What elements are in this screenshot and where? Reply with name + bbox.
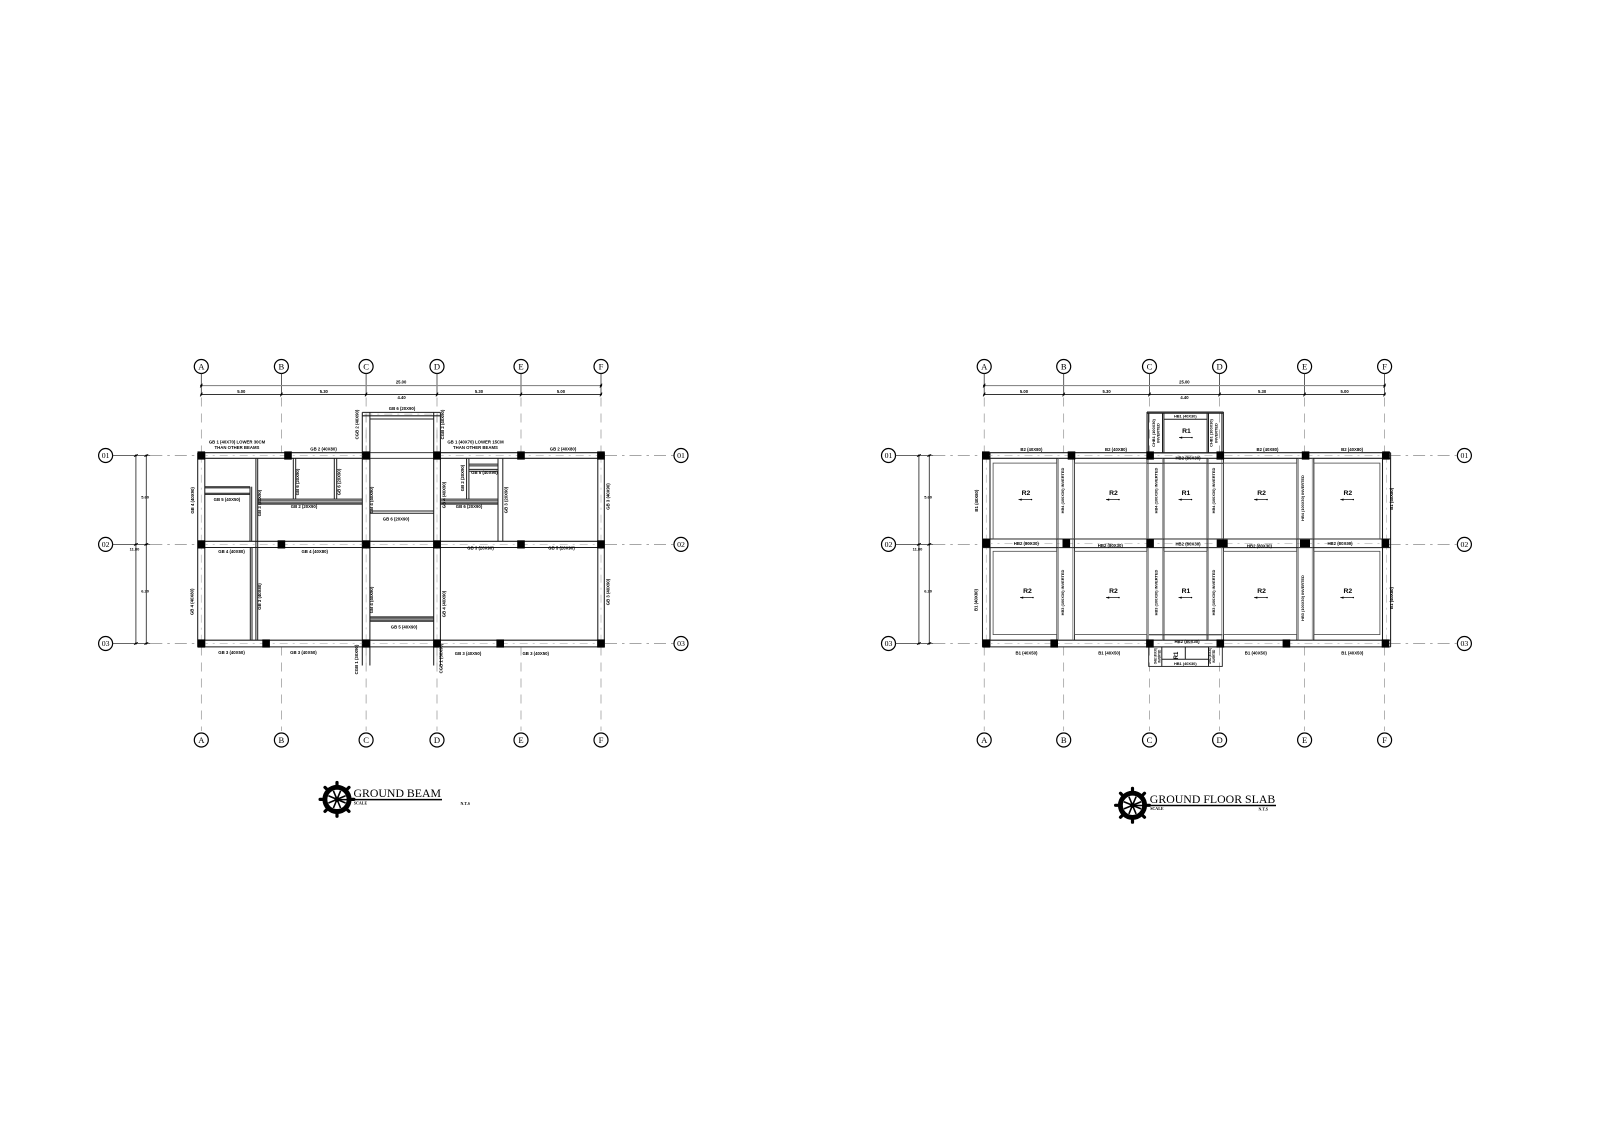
svg-text:B: B: [1061, 361, 1067, 371]
svg-text:03: 03: [102, 639, 110, 648]
svg-text:B1 (40X50): B1 (40X50): [1341, 651, 1364, 656]
svg-text:R2: R2: [1257, 490, 1266, 497]
svg-text:INVERTED: INVERTED: [1212, 649, 1216, 662]
svg-text:11.80: 11.80: [913, 547, 924, 552]
svg-text:GB 2 (40X80): GB 2 (40X80): [310, 447, 337, 452]
svg-text:A: A: [981, 361, 988, 371]
svg-text:HB2 (80X30): HB2 (80X30): [1247, 544, 1273, 549]
svg-text:INVERTED: INVERTED: [1157, 649, 1161, 662]
svg-text:F: F: [1382, 361, 1387, 371]
svg-text:5.00: 5.00: [237, 389, 246, 394]
svg-text:5.00: 5.00: [1020, 389, 1029, 394]
svg-text:GB 1 (40X70) LOWER 15CM: GB 1 (40X70) LOWER 15CM: [447, 439, 504, 444]
svg-text:GB 5 (40X90): GB 5 (40X90): [391, 625, 418, 630]
svg-text:HB2 (80X30): HB2 (80X30): [1175, 541, 1201, 546]
svg-text:B1 (40X80): B1 (40X80): [974, 588, 979, 611]
svg-text:GB 3 (40X50): GB 3 (40X50): [290, 650, 317, 655]
svg-text:A: A: [198, 361, 205, 371]
svg-text:INVERTED: INVERTED: [1213, 423, 1218, 443]
svg-text:5.00: 5.00: [557, 389, 566, 394]
svg-text:R2: R2: [1343, 588, 1352, 595]
svg-text:25.00: 25.00: [1179, 379, 1190, 384]
svg-text:01: 01: [102, 451, 110, 460]
svg-text:5.30: 5.30: [1103, 389, 1112, 394]
svg-text:R2: R2: [1022, 490, 1031, 497]
svg-text:GB 3 (40X50): GB 3 (40X50): [522, 651, 549, 656]
svg-text:GB 6 (20X90): GB 6 (20X90): [337, 468, 342, 495]
svg-text:25.00: 25.00: [396, 379, 407, 384]
svg-text:GB 4 (40X90): GB 4 (40X90): [190, 487, 195, 514]
svg-text:INVERTED: INVERTED: [1156, 423, 1161, 443]
svg-text:GB 4 (40X90): GB 4 (40X90): [442, 481, 447, 508]
svg-text:HB2 (80X30): HB2 (80X30): [1098, 543, 1124, 548]
svg-text:HB3 (100X30) INVERTED: HB3 (100X30) INVERTED: [1154, 570, 1159, 616]
svg-text:R1: R1: [1182, 490, 1191, 497]
svg-text:5.60: 5.60: [924, 494, 933, 499]
svg-text:C: C: [363, 735, 369, 745]
svg-text:E: E: [518, 735, 523, 745]
svg-text:B: B: [279, 735, 285, 745]
svg-text:HB2 (80X30): HB2 (80X30): [1175, 455, 1201, 460]
svg-text:CGB 2 (40X90): CGB 2 (40X90): [354, 409, 359, 439]
svg-text:GB 3 (40X50): GB 3 (40X50): [455, 651, 482, 656]
svg-text:01: 01: [677, 451, 685, 460]
svg-text:HB2 (80X30): HB2 (80X30): [1174, 639, 1200, 644]
svg-text:B1 (40X80): B1 (40X80): [1389, 586, 1394, 609]
svg-text:R2: R2: [1257, 588, 1266, 595]
svg-text:02: 02: [677, 540, 685, 549]
svg-text:SCALE: SCALE: [1150, 806, 1164, 811]
svg-text:C: C: [363, 361, 369, 371]
svg-text:D: D: [1216, 361, 1222, 371]
svg-text:B2 (40X80): B2 (40X80): [1020, 447, 1043, 452]
svg-text:A: A: [981, 735, 988, 745]
svg-text:B1 (40X80): B1 (40X80): [974, 489, 979, 512]
svg-text:B: B: [279, 361, 285, 371]
svg-text:4.40: 4.40: [1180, 395, 1189, 400]
svg-text:GB 2 (20X90): GB 2 (20X90): [460, 464, 465, 491]
svg-text:THAN OTHER BEAMS: THAN OTHER BEAMS: [453, 445, 498, 450]
svg-text:HB4 (100X30) INVERTED: HB4 (100X30) INVERTED: [1211, 468, 1216, 514]
svg-text:GB 3 (40X90): GB 3 (40X90): [605, 578, 610, 605]
svg-text:GROUND BEAM: GROUND BEAM: [354, 787, 442, 800]
svg-text:R2: R2: [1109, 588, 1118, 595]
svg-text:GB 2 (40X80): GB 2 (40X80): [550, 447, 577, 452]
svg-text:HB3 (100X30) INVERTED: HB3 (100X30) INVERTED: [1060, 570, 1065, 616]
svg-text:GB 5 (40X90): GB 5 (40X90): [471, 470, 498, 475]
svg-text:GB 3 (20X90): GB 3 (20X90): [257, 489, 262, 516]
svg-text:HB2 (80X30): HB2 (80X30): [1014, 541, 1040, 546]
svg-text:D: D: [1216, 735, 1222, 745]
svg-text:THAN OTHER BEAMS: THAN OTHER BEAMS: [215, 445, 260, 450]
svg-text:GB 3 (40X80): GB 3 (40X80): [257, 583, 262, 610]
svg-text:GB 4 (40X90): GB 4 (40X90): [369, 486, 374, 513]
svg-text:B2 (40X80): B2 (40X80): [1341, 447, 1364, 452]
svg-text:GB 5 (40X50): GB 5 (40X50): [214, 497, 241, 502]
svg-text:02: 02: [1461, 540, 1469, 549]
svg-text:GB 3 (20X90): GB 3 (20X90): [504, 486, 509, 513]
svg-text:R1: R1: [1174, 651, 1180, 659]
svg-text:4.40: 4.40: [398, 395, 407, 400]
svg-text:5.30: 5.30: [320, 389, 329, 394]
svg-text:11.80: 11.80: [130, 547, 141, 552]
svg-text:CGB 2 (40X90): CGB 2 (40X90): [440, 409, 445, 439]
svg-text:R2: R2: [1023, 588, 1032, 595]
svg-text:N.T.S: N.T.S: [1259, 807, 1269, 812]
svg-text:R1: R1: [1182, 428, 1191, 435]
svg-text:HB1 (40X30): HB1 (40X30): [1174, 414, 1197, 419]
svg-text:F: F: [1382, 735, 1387, 745]
svg-text:GB 3 (40X90): GB 3 (40X90): [605, 483, 610, 510]
svg-text:GB 5 (20X90): GB 5 (20X90): [548, 545, 575, 550]
svg-text:C: C: [1147, 735, 1153, 745]
svg-text:B1 (40X50): B1 (40X50): [1245, 651, 1268, 656]
svg-text:F: F: [599, 735, 604, 745]
svg-text:03: 03: [1461, 639, 1469, 648]
svg-text:03: 03: [677, 639, 685, 648]
svg-text:HB4 (100X30) INVERTED: HB4 (100X30) INVERTED: [1060, 468, 1065, 514]
svg-text:C: C: [1147, 361, 1153, 371]
svg-text:R1: R1: [1182, 588, 1191, 595]
svg-text:E: E: [1302, 361, 1307, 371]
svg-text:02: 02: [885, 540, 893, 549]
svg-text:A: A: [198, 735, 205, 745]
svg-text:R2: R2: [1109, 490, 1118, 497]
svg-text:HB3 (100X30) INVERTED: HB3 (100X30) INVERTED: [1211, 570, 1216, 616]
svg-text:GB 4 (40X80): GB 4 (40X80): [189, 588, 194, 615]
svg-text:B: B: [1061, 735, 1067, 745]
svg-text:B1 (40X50): B1 (40X50): [1098, 651, 1121, 656]
svg-text:F: F: [599, 361, 604, 371]
svg-text:5.00: 5.00: [1341, 389, 1350, 394]
svg-text:D: D: [434, 735, 440, 745]
svg-text:5.30: 5.30: [475, 389, 484, 394]
svg-text:HB3 (100X30) INVERTED: HB3 (100X30) INVERTED: [1300, 575, 1305, 621]
svg-text:B2 (40X80): B2 (40X80): [1257, 447, 1280, 452]
svg-text:03: 03: [885, 639, 893, 648]
svg-text:GB 4 (40X90): GB 4 (40X90): [442, 590, 447, 617]
svg-text:5.60: 5.60: [141, 494, 150, 499]
svg-text:D: D: [434, 361, 440, 371]
svg-text:GB 6 (20X90): GB 6 (20X90): [383, 516, 410, 521]
svg-text:CGB 1 (30X90): CGB 1 (30X90): [438, 643, 443, 673]
svg-text:GB 3 (40X50): GB 3 (40X50): [218, 650, 245, 655]
svg-text:GB 6 (20X90): GB 6 (20X90): [456, 504, 483, 509]
svg-text:02: 02: [102, 540, 110, 549]
svg-text:5.30: 5.30: [1258, 389, 1267, 394]
svg-text:B2 (40X80): B2 (40X80): [1105, 447, 1128, 452]
svg-text:R2: R2: [1343, 490, 1352, 497]
svg-text:HB1 (40X30): HB1 (40X30): [1174, 661, 1197, 666]
svg-text:E: E: [518, 361, 523, 371]
svg-text:HB4 (100X30) INVERTED: HB4 (100X30) INVERTED: [1300, 475, 1305, 521]
svg-text:CGB 1 (30X90): CGB 1 (30X90): [354, 644, 359, 674]
svg-text:GB 4 (40X80): GB 4 (40X80): [218, 549, 245, 554]
svg-text:GB 2 (20X90): GB 2 (20X90): [291, 504, 318, 509]
svg-text:HB2 (80X30): HB2 (80X30): [1327, 541, 1353, 546]
svg-text:E: E: [1302, 735, 1307, 745]
svg-text:HB4 (100X30) INVERTED: HB4 (100X30) INVERTED: [1154, 468, 1159, 514]
svg-text:01: 01: [1461, 451, 1469, 460]
svg-text:01: 01: [885, 451, 893, 460]
svg-text:GB 3 (20X90): GB 3 (20X90): [467, 545, 494, 550]
svg-text:GROUND FLOOR SLAB: GROUND FLOOR SLAB: [1150, 793, 1276, 806]
svg-text:6.20: 6.20: [141, 589, 150, 594]
svg-text:GB 1 (40X70) LOWER 30CM: GB 1 (40X70) LOWER 30CM: [209, 439, 266, 444]
svg-text:GB 4 (40X90): GB 4 (40X90): [369, 586, 374, 613]
svg-text:GB 6 (20X90): GB 6 (20X90): [295, 468, 300, 495]
svg-text:GB 6 (20X90): GB 6 (20X90): [389, 406, 416, 411]
svg-text:B1 (40X50): B1 (40X50): [1016, 651, 1039, 656]
svg-text:SCALE: SCALE: [354, 800, 368, 805]
svg-text:GB 4 (40X80): GB 4 (40X80): [301, 549, 328, 554]
svg-text:6.20: 6.20: [924, 589, 933, 594]
svg-text:B1 (40X80): B1 (40X80): [1389, 487, 1394, 510]
svg-text:N.T.S: N.T.S: [461, 801, 471, 806]
